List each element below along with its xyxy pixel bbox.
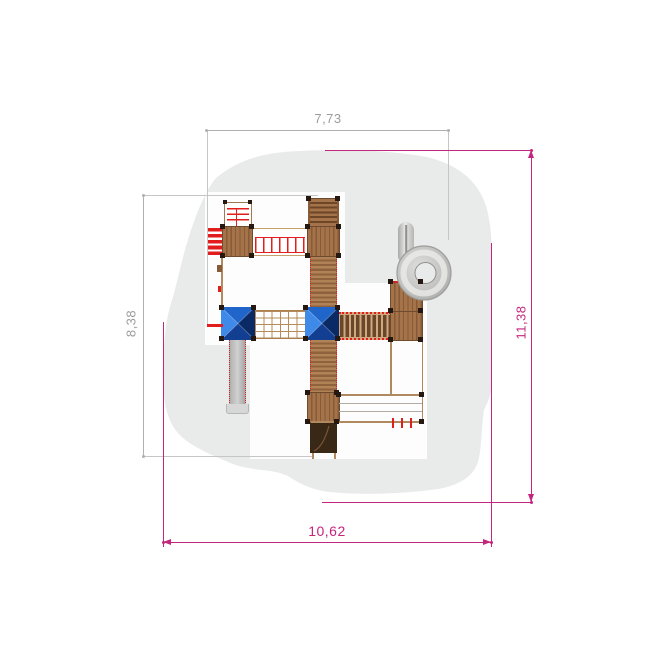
post <box>219 305 224 310</box>
dim-ext-bottom-right <box>491 243 492 547</box>
post <box>335 196 340 201</box>
post <box>248 200 252 204</box>
post <box>306 196 311 201</box>
post <box>418 279 423 284</box>
straight-slide <box>229 340 246 405</box>
rope-frame-top-rail <box>338 394 423 396</box>
dim-label-right-height: 11,38 <box>514 295 529 351</box>
access-stairs-top <box>308 198 339 227</box>
post <box>388 337 393 342</box>
rope-frame-bottom-rail <box>311 421 423 423</box>
red-tick <box>392 418 394 428</box>
post <box>223 200 227 204</box>
dim-dot <box>142 455 145 458</box>
post <box>251 305 256 310</box>
panel-leg <box>334 453 336 459</box>
wood-tick <box>217 265 222 272</box>
ramp-walkway-upper <box>310 257 337 308</box>
post <box>251 336 256 341</box>
dim-dot <box>205 129 208 132</box>
post <box>388 308 393 313</box>
post <box>388 279 393 284</box>
dim-ext-left-top <box>143 195 318 196</box>
dim-dot <box>530 149 533 152</box>
post <box>249 253 254 258</box>
post <box>336 224 341 229</box>
red-handle-bar <box>207 324 223 327</box>
rope-frame-rope <box>339 403 422 404</box>
post <box>303 336 308 341</box>
red-tick <box>410 418 412 428</box>
spiral-tube-slide <box>393 216 457 306</box>
straight-slide-end <box>226 404 249 414</box>
playground-plan-drawing: 7,73 8,38 11,38 10,62 <box>0 0 660 660</box>
rung-bridge-rungs <box>340 315 390 337</box>
climbing-frame <box>224 202 252 227</box>
dim-ext-right-top <box>325 150 532 151</box>
post <box>335 336 340 341</box>
post <box>305 419 310 424</box>
support-post-line <box>422 341 424 394</box>
dim-ext-left-bottom <box>143 456 312 457</box>
post <box>419 392 424 397</box>
panel-leg <box>312 453 314 459</box>
post <box>220 253 225 258</box>
monkey-bar-ladder <box>253 228 307 256</box>
dim-label-left-height: 8,38 <box>124 296 139 352</box>
dim-line-top <box>207 130 448 131</box>
post <box>336 253 341 258</box>
pyramid-roof-tower-1 <box>221 307 255 340</box>
dim-line-bottom <box>163 542 491 543</box>
climbing-frame-rungs <box>227 208 249 224</box>
support-post-line <box>390 341 392 394</box>
post <box>336 392 341 397</box>
climbing-frame-mid-bar <box>236 208 237 227</box>
dim-dot <box>142 194 145 197</box>
post <box>305 390 310 395</box>
post <box>303 305 308 310</box>
dim-line-left <box>143 195 144 456</box>
post <box>418 308 423 313</box>
post <box>335 305 340 310</box>
dim-dot <box>162 541 165 544</box>
rope-frame-rope <box>339 411 422 412</box>
ramp-walkway-lower <box>310 340 337 393</box>
dim-dot <box>490 541 493 544</box>
dim-ext-right-bottom <box>322 502 532 503</box>
net-bridge <box>255 310 305 339</box>
post <box>219 336 224 341</box>
dim-label-bottom-width: 10,62 <box>299 523 355 539</box>
pyramid-roof-tower-2 <box>305 307 339 340</box>
rung-bridge <box>339 312 391 340</box>
monkey-bar-rungs <box>255 237 305 253</box>
exit-panel-curve <box>310 423 337 453</box>
dim-label-top-width: 7,73 <box>300 111 356 126</box>
post <box>305 224 310 229</box>
post <box>419 419 424 424</box>
post <box>418 337 423 342</box>
post <box>305 253 310 258</box>
dim-line-right <box>531 150 532 502</box>
red-tick <box>218 286 221 292</box>
post <box>220 224 225 229</box>
red-tick <box>401 418 403 428</box>
post <box>249 224 254 229</box>
post <box>334 419 339 424</box>
dim-dot <box>530 501 533 504</box>
dark-exit-panel <box>310 423 337 453</box>
dim-dot <box>447 129 450 132</box>
dim-ext-bottom-left <box>163 322 164 547</box>
